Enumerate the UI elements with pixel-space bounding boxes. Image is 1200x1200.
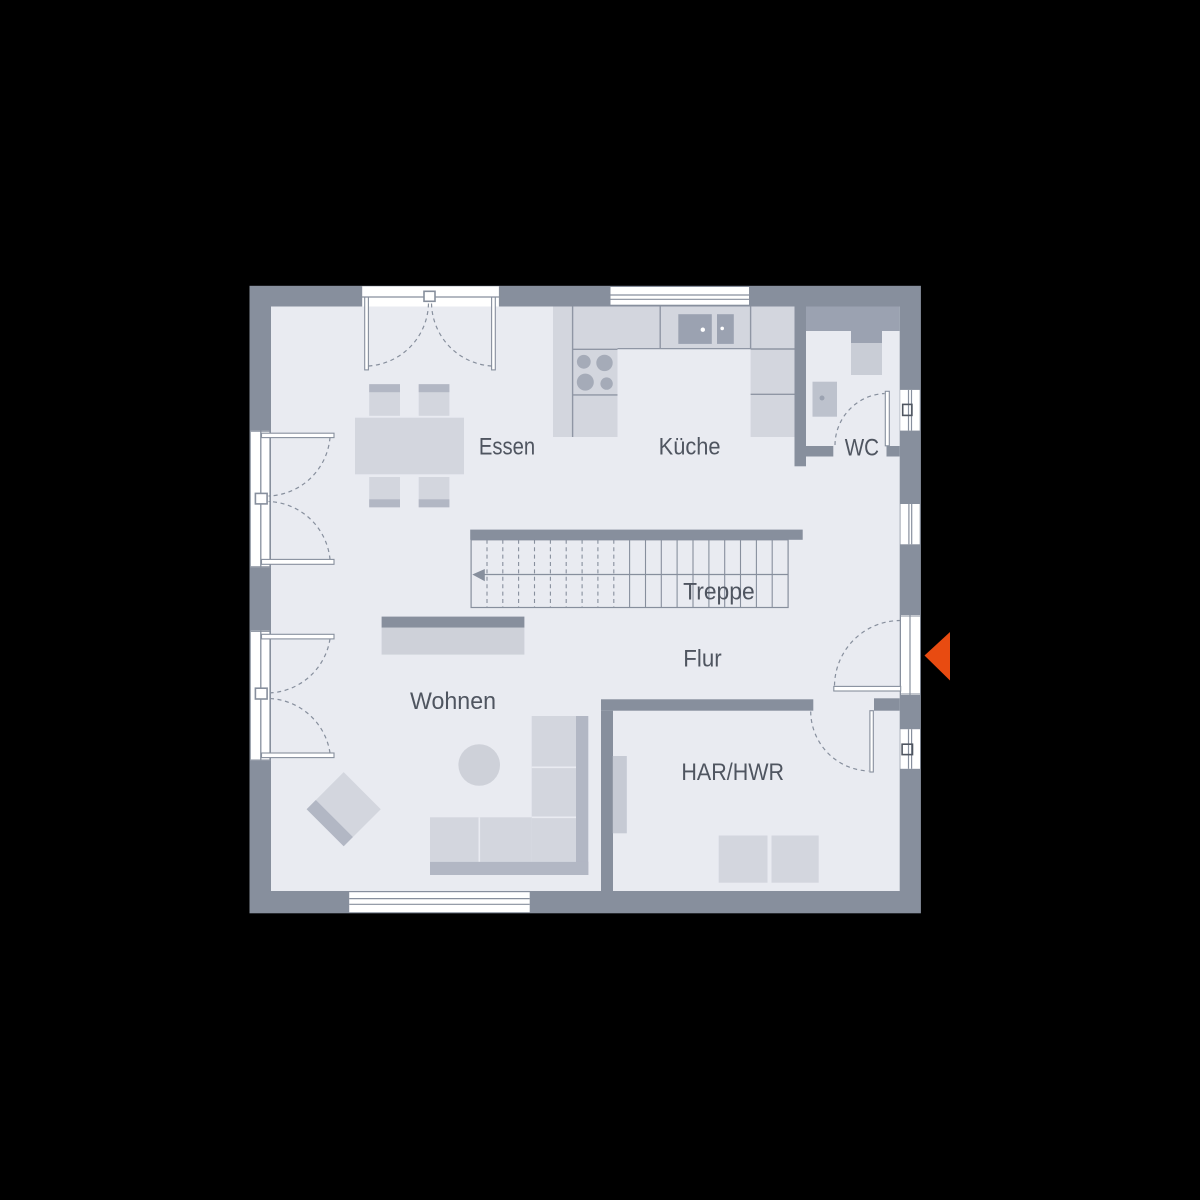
svg-text:HAR/HWR: HAR/HWR [681, 759, 784, 786]
svg-text:Treppe: Treppe [683, 578, 755, 605]
svg-text:WC: WC [845, 435, 879, 462]
svg-text:Küche: Küche [659, 434, 721, 461]
svg-text:Wohnen: Wohnen [410, 688, 496, 715]
svg-text:Flur: Flur [683, 646, 721, 673]
svg-text:Essen: Essen [479, 433, 535, 460]
